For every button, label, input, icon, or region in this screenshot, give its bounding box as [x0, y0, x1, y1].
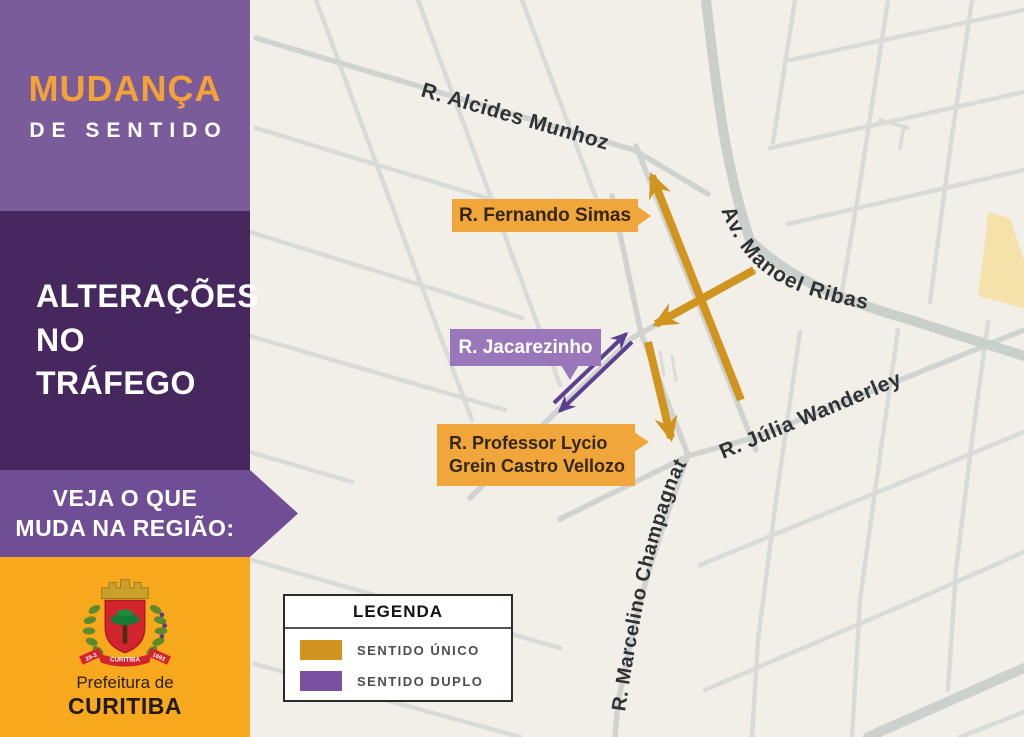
callout-jacarezinho: R. Jacarezinho: [450, 329, 601, 366]
callout-fernando-simas-label: R. Fernando Simas: [459, 205, 631, 227]
crest-ribbon-text: CURITIBA: [110, 656, 141, 663]
two-way-swatch-icon: [300, 671, 342, 691]
legend-title: LEGENDA: [285, 596, 511, 629]
footer-block: CURITIBA 29-3 1693 Prefeitura de CURITIB…: [0, 557, 250, 737]
banner-line1: VEJA O QUE: [53, 484, 198, 514]
legend: LEGENDA SENTIDO ÚNICO SENTIDO DUPLO: [283, 594, 513, 702]
callout-fernando-simas: R. Fernando Simas: [452, 199, 638, 232]
org-name-line1: Prefeitura de: [76, 673, 173, 693]
callout-jacarezinho-label: R. Jacarezinho: [458, 337, 592, 359]
curitiba-crest-icon: CURITIBA 29-3 1693: [71, 575, 179, 669]
headline-block: MUDANÇA DE SENTIDO: [0, 0, 250, 211]
banner-line2: MUDA NA REGIÃO:: [15, 514, 234, 544]
traffic-change-poster: R. Alcides Munhoz Av. Manoel Ribas R. Jú…: [0, 0, 1024, 737]
legend-label-two-way: SENTIDO DUPLO: [357, 674, 483, 689]
callout-professor-line2: Grein Castro Vellozo: [449, 455, 635, 478]
subheadline-line1: ALTERAÇÕES: [36, 275, 250, 319]
headline-line2: DE SENTIDO: [29, 119, 227, 143]
legend-label-one-way: SENTIDO ÚNICO: [357, 643, 480, 658]
subheadline-block: ALTERAÇÕES NO TRÁFEGO: [0, 211, 250, 470]
banner-block: VEJA O QUE MUDA NA REGIÃO:: [0, 470, 298, 557]
org-name-line2: CURITIBA: [68, 693, 182, 720]
callout-professor-line1: R. Professor Lycio: [449, 432, 635, 455]
legend-row-one-way: SENTIDO ÚNICO: [285, 640, 511, 660]
subheadline-line2: NO TRÁFEGO: [36, 319, 250, 406]
legend-row-two-way: SENTIDO DUPLO: [285, 671, 511, 691]
headline-line1: MUDANÇA: [29, 68, 222, 110]
one-way-swatch-icon: [300, 640, 342, 660]
callout-professor-lycio: R. Professor Lycio Grein Castro Vellozo: [437, 424, 635, 486]
